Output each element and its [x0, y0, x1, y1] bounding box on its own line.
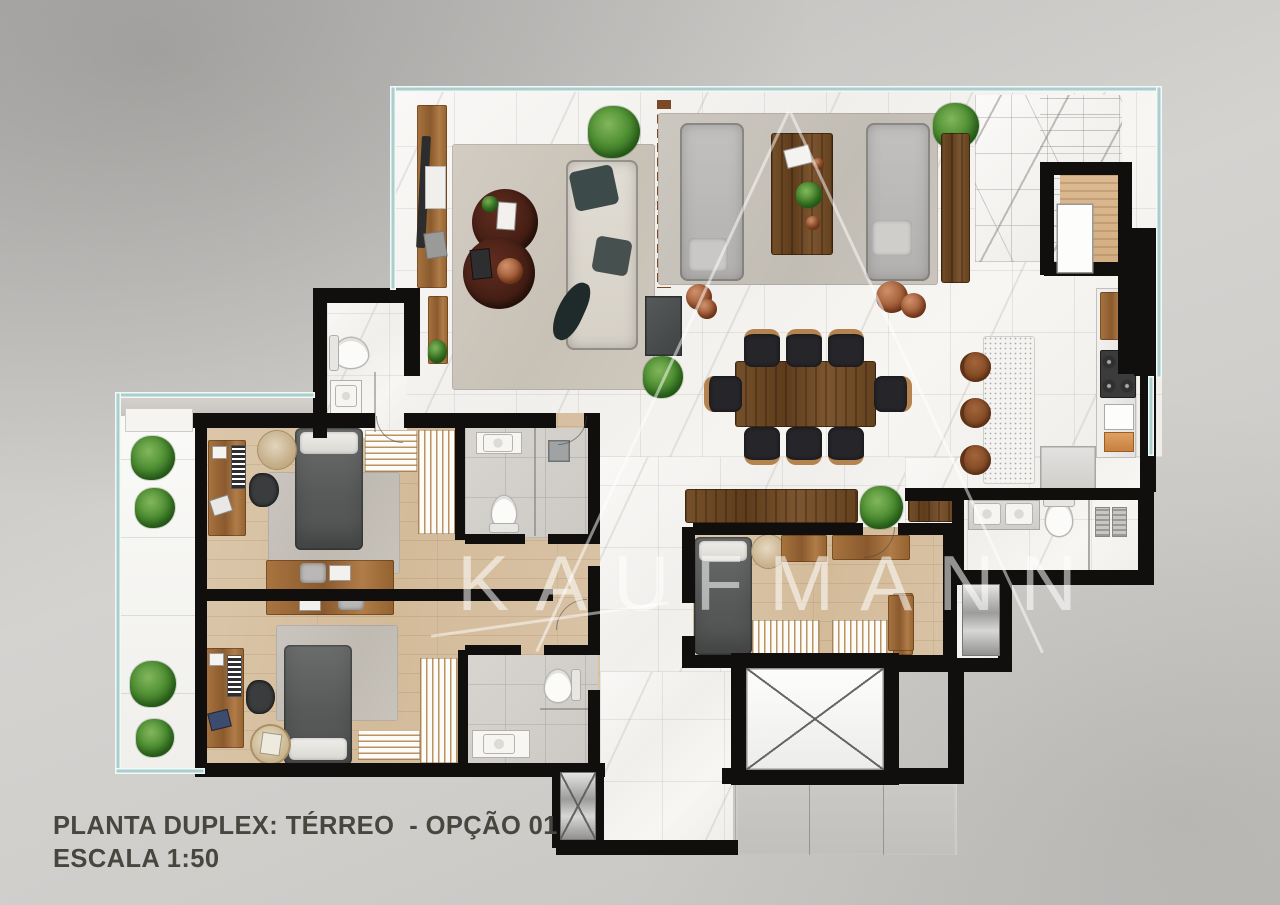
sofa-pillow-dark2 — [591, 235, 633, 277]
bedroom2-keyboard-tray — [228, 656, 241, 696]
media-box — [426, 167, 445, 208]
caption-title: PLANTA DUPLEX: TÉRREO - OPÇÃO 01 — [53, 810, 558, 843]
bath3-towel2 — [1113, 508, 1126, 536]
bedroom1-chair — [249, 473, 279, 507]
wall-bath1-left — [455, 428, 465, 540]
wall-powder-right — [404, 288, 420, 376]
wall-bedrooms-bottom — [195, 763, 605, 777]
dining-chair-s3 — [828, 427, 864, 465]
oven-drawer-wood — [1104, 432, 1134, 452]
shared-desk-chair1 — [300, 563, 326, 583]
watermark-text: KAUFMANN — [425, 538, 1135, 629]
bedroom1-pillows — [300, 432, 358, 454]
decor-pot-b2 — [901, 293, 926, 318]
bedroom2-chair — [246, 680, 275, 714]
living2-sideboard — [941, 133, 970, 283]
shared-desk-monitor1 — [330, 566, 350, 580]
powder-toilet-tank — [330, 336, 338, 370]
terrace-bench — [125, 408, 193, 432]
suite3-sideboard-long — [685, 489, 858, 523]
bar-stool-3 — [960, 445, 991, 475]
bath3-towel1 — [1096, 508, 1109, 536]
powder-sink — [336, 386, 356, 406]
bedroom1-keyboard-tray — [232, 446, 245, 488]
bedroom1-jute-rug — [258, 431, 296, 469]
wall-common-right — [948, 658, 964, 784]
bath1-shower-glass — [534, 428, 536, 536]
table-cup2 — [806, 216, 820, 230]
entry-door-leaf — [1058, 205, 1092, 272]
facade-right-upper — [1156, 86, 1162, 378]
magazine-stack — [471, 249, 492, 279]
dining-chair-e — [874, 376, 912, 412]
caption-scale: ESCALA 1:50 — [53, 843, 558, 876]
facade-left-living — [390, 86, 396, 290]
dining-chair-s1 — [744, 427, 780, 465]
bedroom2-closet — [420, 658, 458, 763]
common-area-concrete — [735, 781, 957, 855]
elevator-cab — [746, 668, 884, 770]
wall-bath3-top — [952, 488, 1154, 500]
facade-top — [390, 86, 1162, 92]
console-book — [424, 232, 446, 258]
wall-bedrooms-top-b — [404, 413, 556, 428]
facade-terrace-bottom — [115, 768, 205, 774]
bath2-toilet-tank — [572, 670, 580, 700]
facade-terrace-top — [115, 392, 315, 398]
powder-toilet — [334, 338, 368, 368]
living2-pillow-right — [872, 220, 912, 256]
dining-chair-n1 — [744, 329, 780, 367]
bedroom2-basket-book — [261, 733, 282, 755]
dining-chair-n2 — [786, 329, 822, 367]
dining-table — [735, 361, 876, 427]
dining-chair-w — [704, 376, 742, 412]
bath1-sink — [484, 435, 512, 451]
bar-stool-2 — [960, 398, 991, 428]
bedroom2-pillows — [289, 738, 347, 760]
wall-entry-mass — [1118, 228, 1160, 374]
bedroom2-shoe-rack — [358, 730, 420, 760]
wall-entry-left — [1040, 162, 1054, 275]
wall-suite3-top-a — [693, 523, 863, 535]
living2-sofa-right — [866, 123, 930, 281]
bedroom1-desk-item1 — [213, 447, 226, 458]
oven — [1104, 404, 1134, 430]
dining-chair-s2 — [786, 427, 822, 465]
copper-bowl — [497, 258, 523, 284]
bath1-toilet-tank — [490, 524, 518, 532]
coffee-table-books — [497, 202, 516, 229]
bedroom2-desk-item — [210, 654, 223, 665]
wall-bath2-top-a — [465, 645, 521, 655]
bath3-toilet — [1046, 502, 1072, 536]
wall-bedrooms-top-a — [193, 413, 375, 428]
dining-chair-n3 — [828, 329, 864, 367]
bar-stool-1 — [960, 352, 991, 382]
facade-right-kitchen — [1148, 376, 1154, 456]
bedroom1-closet — [418, 430, 458, 534]
facade-terrace-left — [115, 392, 121, 772]
bath2-sink — [484, 735, 514, 753]
fridge — [1040, 446, 1096, 490]
wall-bath2-left — [458, 650, 468, 765]
floorplan-page: KAUFMANN PLANTA DUPLEX: TÉRREO - OPÇÃO 0… — [0, 0, 1280, 905]
shaft2-cab — [560, 772, 596, 840]
bath3-sink2 — [1006, 504, 1032, 524]
bath2-toilet — [545, 670, 571, 702]
hallway-extension-floor — [600, 672, 733, 844]
caption: PLANTA DUPLEX: TÉRREO - OPÇÃO 01 ESCALA … — [53, 810, 558, 876]
